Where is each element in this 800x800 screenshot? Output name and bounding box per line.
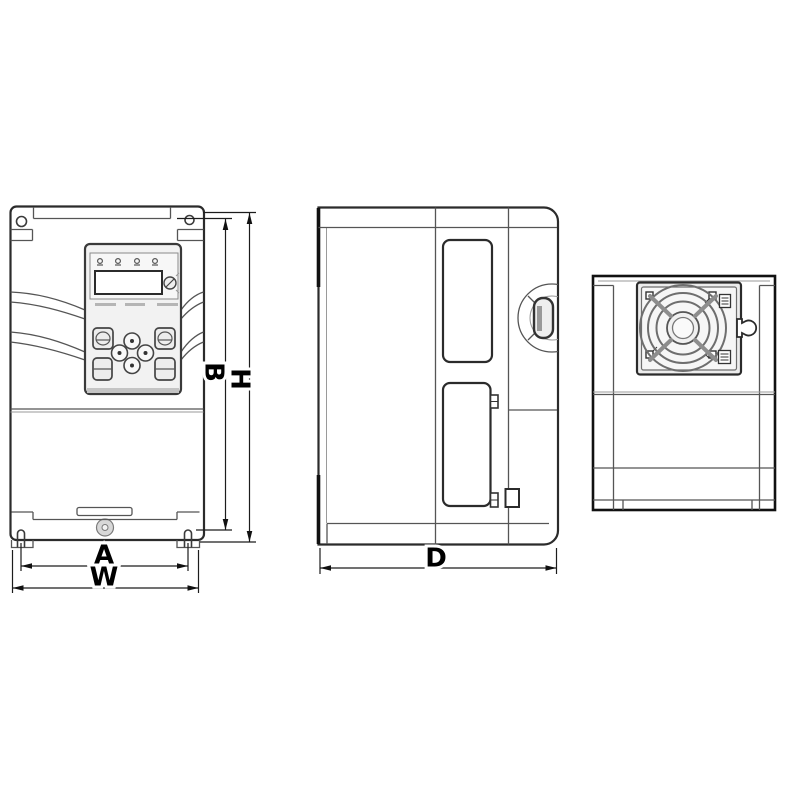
keypad-button-top-left — [93, 328, 113, 349]
lower-slot-cover — [443, 383, 491, 506]
dim-label-W: W — [90, 563, 119, 593]
keypad-bezel-shadow — [87, 388, 179, 393]
side-view — [319, 208, 587, 545]
bottom-screw — [97, 519, 114, 536]
front-view — [11, 207, 205, 548]
keypad-panel — [85, 244, 181, 394]
keypad-button-bottom-left — [93, 358, 112, 380]
upper-slot-cover — [443, 240, 492, 362]
keypad-button-bottom-right — [155, 358, 175, 380]
top-view — [593, 276, 775, 510]
side-body — [319, 208, 559, 545]
fan-connector-bottom — [719, 351, 731, 364]
fan-latch — [737, 319, 756, 337]
lcd-display — [95, 271, 162, 294]
dimension-D: D — [320, 544, 557, 575]
dimension-drawing: A W B H — [0, 0, 800, 800]
cooling-fan — [637, 283, 756, 375]
fan-connector-top — [720, 295, 731, 308]
dim-label-D: D — [425, 544, 447, 574]
dim-label-H: H — [225, 368, 255, 390]
side-latch-tab — [506, 489, 520, 507]
slot-clip-bottom — [491, 493, 499, 507]
drawing-canvas: A W B H — [0, 0, 800, 800]
keypad-button-top-right — [155, 328, 175, 349]
slot-clip-top — [491, 395, 499, 408]
dim-label-B: B — [199, 362, 229, 382]
panel-label-marks — [95, 303, 178, 306]
